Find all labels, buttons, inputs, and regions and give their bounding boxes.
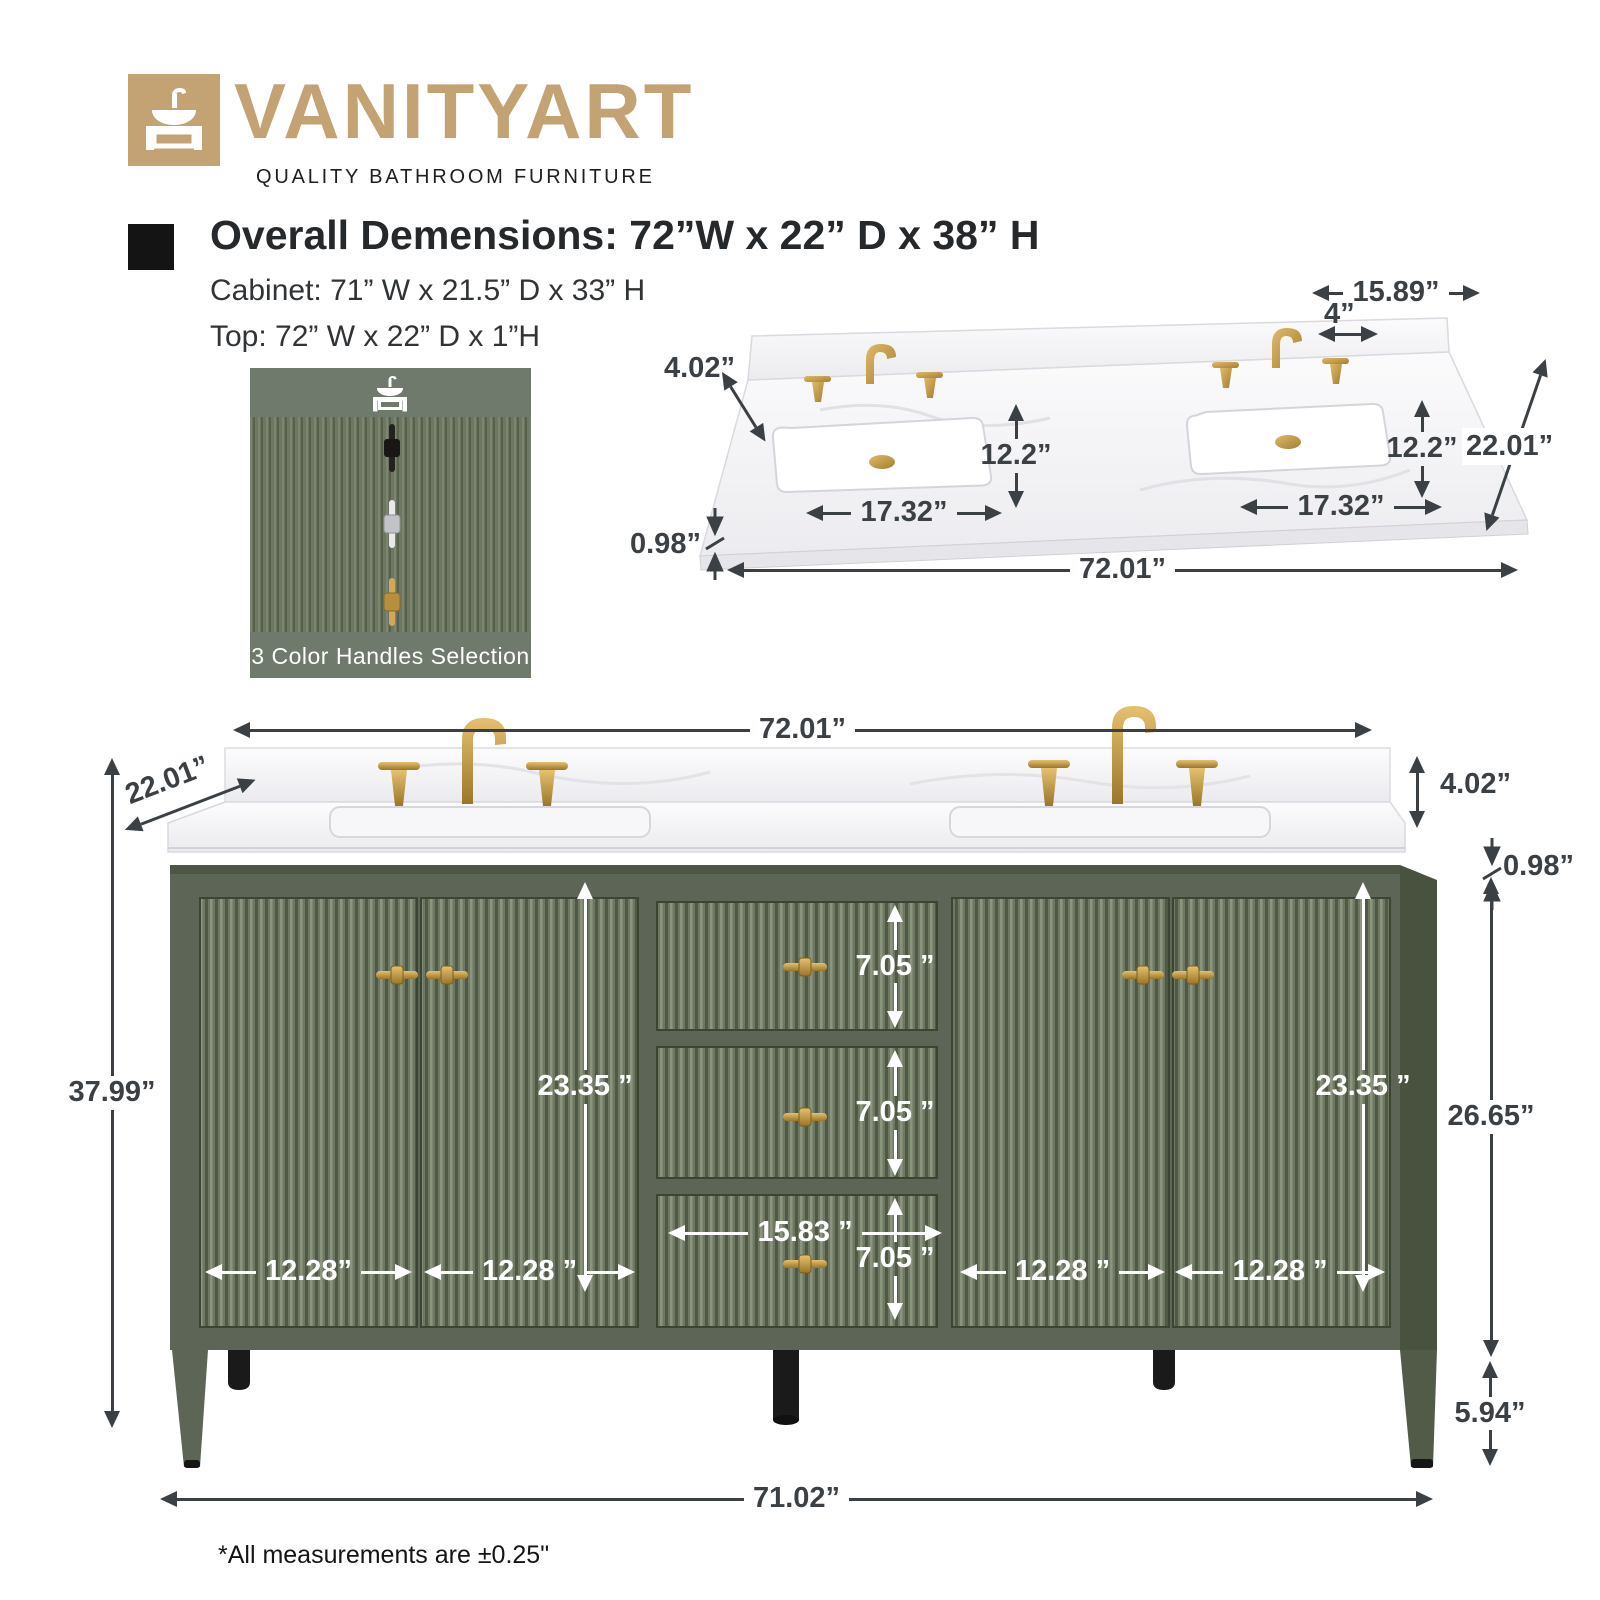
dim-sink-depth-left-label: 12.2” xyxy=(972,439,1061,473)
dim-sink-depth-right-label: 12.2” xyxy=(1378,432,1467,466)
dim-door4-width-label: 12.28 ” xyxy=(1223,1255,1336,1289)
dim-front-full-width-label: 72.01” xyxy=(750,713,855,747)
top-dimensions-line: Top: 72” W x 22” D x 1”H xyxy=(210,320,540,354)
dim-door1-width-label: 12.28” xyxy=(256,1255,361,1289)
brand-tagline: QUALITY BATHROOM FURNITURE xyxy=(256,166,655,189)
handle-box-caption: 3 Color Handles Selection xyxy=(250,643,531,670)
vanity-icon xyxy=(366,374,414,414)
dim-body-height-label: 26.65” xyxy=(1438,1100,1543,1134)
handle-option-chrome xyxy=(382,500,402,548)
dim-back-width-label: 15.89” xyxy=(1343,276,1448,310)
dim-drawer2-height-label: 7.05 ” xyxy=(847,1096,944,1130)
dim-leg-height-label: 5.94” xyxy=(1446,1397,1535,1431)
dim-top-full-width-label: 72.01” xyxy=(1070,553,1175,587)
vanity-front-illustration xyxy=(90,690,1450,1490)
dim-sink-width-right-label: 17.32” xyxy=(1288,490,1393,524)
spec-bullet-square xyxy=(128,224,174,270)
brand-logo: VANITYART QUALITY BATHROOM FURNITURE xyxy=(128,74,220,171)
dim-door-col-left-height-label: 23.35 ” xyxy=(528,1070,641,1104)
product-dimension-sheet: VANITYART QUALITY BATHROOM FURNITURE Ove… xyxy=(0,0,1600,1600)
dim-depth-label: 22.01” xyxy=(1462,428,1557,465)
measurement-tolerance-note: *All measurements are ±0.25" xyxy=(218,1541,549,1570)
overall-dimensions-title: Overall Demensions: 72”W x 22” D x 38” H xyxy=(210,212,1039,259)
handle-option-gold xyxy=(382,578,402,626)
brand-name: VANITYART xyxy=(234,66,694,157)
dim-drawer1-height-label: 7.05 ” xyxy=(847,950,944,984)
dim-door3-width-label: 12.28 ” xyxy=(1006,1255,1119,1289)
vanity-logo-icon xyxy=(128,74,220,166)
cabinet-dimensions-line: Cabinet: 71” W x 21.5” D x 33” H xyxy=(210,274,645,308)
dim-top-thickness-label: 0.98” xyxy=(630,528,701,561)
dim-drawer-width-label: 15.83 ” xyxy=(748,1216,861,1250)
dim-door2-width-label: 12.28 ” xyxy=(473,1255,586,1289)
handle-option-black xyxy=(382,424,402,472)
dim-front-top-thickness-label: 0.98” xyxy=(1503,850,1574,883)
dim-base-width-label: 71.02” xyxy=(744,1482,849,1516)
handle-color-selection-box: 3 Color Handles Selection xyxy=(250,368,531,678)
dim-top-thickness-arrow xyxy=(700,508,730,580)
dim-sink-width-left-label: 17.32” xyxy=(851,496,956,530)
dim-overall-height-label: 37.99” xyxy=(59,1076,164,1110)
dim-front-splash-height-label: 4.02” xyxy=(1440,768,1511,801)
dim-door-col-right-height-label: 23.35 ” xyxy=(1306,1070,1419,1104)
